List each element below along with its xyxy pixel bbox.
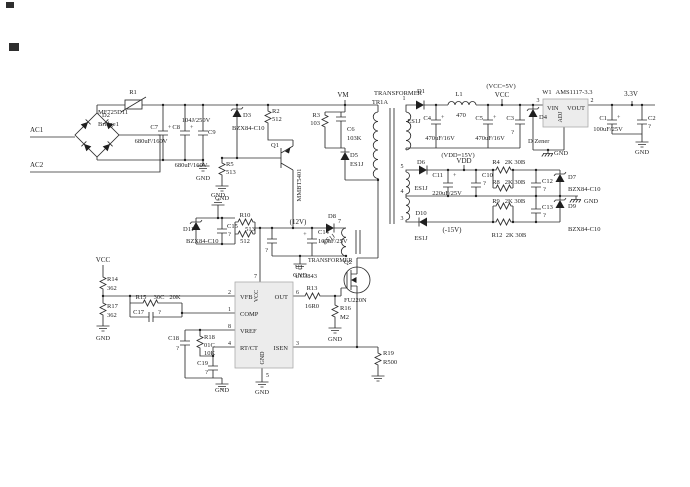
r5-ref: R5 [226,161,234,168]
r3-resistor [322,112,328,130]
ground-icon [216,182,229,191]
c14-polarity: + [303,232,307,238]
net-label-vcc: VCC [495,91,510,99]
d9-zener [554,196,566,212]
r5-value: 513 [226,169,236,176]
c17-capacitor [144,312,158,322]
ic-pin5-num: 5 [266,373,269,379]
c19-ref: C19 [197,360,208,367]
ams-pin-adj: ADJ [558,111,564,123]
ic-pin8-num: 8 [228,324,231,330]
c4-capacitor [431,115,441,129]
d7-ref: D7 [568,174,577,181]
c7-value: 680uF/160V [135,138,168,145]
c11-value: 220uF/25V [432,190,462,197]
c5-polarity: + [493,115,497,121]
ic-pin1-num: 1 [228,307,231,313]
r16-resistor [332,302,338,320]
r4-ref: R4 [492,159,500,166]
c13-capacitor [531,204,541,218]
c17-ref: C17 [133,309,145,316]
tr1a-secondary-winding-3 [406,198,410,220]
d3-zener [231,105,243,121]
r3-ref: R3 [312,112,320,119]
ground-icon [329,324,342,333]
c18-ref: C18 [168,335,179,342]
r8-ref: R8 [492,179,500,186]
c9-value: 104J/250V [182,117,211,124]
net-label-vm: VM [337,91,349,99]
schematic-page: AC1 AC2 R1 MF725D11 D2 Bridge1 C7 + 680u… [0,0,690,487]
ic-pin-out: OUT [275,294,288,301]
net-label-vdd: VDD [456,157,471,165]
tr1a-pin4: 4 [401,189,404,195]
c12-capacitor [531,178,541,192]
tr1a-secondary-winding-2 [406,172,410,194]
net-label-ac2: AC2 [30,161,44,169]
tr1a-pin3: 3 [401,216,404,222]
q2-ref: Q2 [344,259,352,266]
q2-mosfet [344,267,370,293]
d3-ref: D3 [243,112,251,119]
r19-value: R500 [383,359,397,366]
c17-value: ? [158,309,161,316]
gnd-label: GND [196,175,210,182]
c7-polarity: + [168,125,172,131]
d6-value: ES1J [414,185,428,192]
c15-ref: C15 [227,223,238,230]
r18-ref: R18 [204,334,215,341]
c2-capacitor [637,115,647,129]
c3-value: ? [511,129,514,136]
c5-capacitor [483,115,493,129]
net-label-3v3: 3.3V [624,90,638,98]
c13-value: ? [543,212,546,219]
tr1a-pin1: 1 [403,96,406,102]
l1-ref: L1 [455,91,462,98]
c1-value: 100uF/25V [593,126,623,133]
r14-ref: R14 [107,276,119,283]
ic-pin-rtct: RT/CT [240,345,258,352]
r19-resistor [375,350,381,368]
d1-diode [412,101,428,110]
c4-polarity: + [441,115,445,121]
r4-value: 2K 30B [505,159,526,166]
ams-pin-vin: VIN [547,105,559,112]
earth-ground-icon [570,196,581,203]
ams-pin2: 2 [591,98,594,104]
r17-ref: R17 [107,303,119,310]
r14-value: 362 [107,285,117,292]
r15-code: 30C [154,294,165,301]
c8-value: 680uF/160V [175,162,208,169]
net-label-vcc-eq: (VCC=5V) [486,83,515,90]
ic-pin-comp: COMP [240,311,259,318]
r2-ref: R2 [272,108,280,115]
r19-ref: R19 [383,350,394,357]
tr1a-pin5: 5 [401,164,404,170]
d4-zener [527,105,539,121]
gnd-label: GND [554,150,568,157]
d9-value: BZX84-C10 [568,226,601,233]
ic-pin-vref: VREF [240,328,257,335]
c7-ref: C7 [150,124,158,131]
c4-ref: C4 [423,115,431,122]
ams-pin-vout: VOUT [567,105,585,112]
r2-value: 512 [272,116,282,123]
gnd-label: GND [635,149,649,156]
r5-resistor [219,160,225,178]
ic-pin-vcc: VCC [254,290,260,302]
d10-value: ES1J [414,235,428,242]
d9-ref: D9 [568,203,576,210]
c5-ref: C5 [475,115,483,122]
c19-capacitor [208,361,218,375]
c1-ref: C1 [599,115,607,122]
c8-ref: C8 [172,124,180,131]
d2-value: Bridge1 [98,121,119,128]
d6-diode [415,166,431,175]
q1-transistor [281,146,293,170]
q2-value: FU220N [344,297,367,304]
c6-capacitor [336,112,346,126]
d5-ref: D5 [350,152,358,159]
net-label-12v: (12V) [290,218,307,226]
d10-ref: D10 [415,210,426,217]
q1-value: MMBT5401 [296,169,303,202]
w1-value: AMS1117-3.3 [556,89,593,96]
c12-ref: C12 [542,178,553,185]
d5-value: ES1J [350,161,364,168]
u1-value: UC3843 [295,273,317,280]
gnd-label: GND [255,389,269,396]
transformer-label: TRANSFORMER [374,90,423,97]
ic-pin-vfb: VFB [240,294,253,301]
r12-ref: R12 [492,232,503,239]
r17-value: 362 [107,312,117,319]
d7-zener [554,170,566,186]
tr1a-ref: TR1A [372,99,389,106]
tr1a-pin7: 7 [338,219,341,225]
d1-ref: D1 [417,88,425,95]
bridge-rectifier-outline [75,113,119,157]
d4-value: D Zener [528,138,550,145]
ic-pin7-num: 7 [254,274,257,280]
c14-ref: C14 [318,229,330,236]
r10-value-a: 513 [245,226,255,233]
d3-value: BZX84-C10 [232,125,265,132]
ic-pin6-num: 6 [296,290,299,296]
w1-ref: W1 [542,89,551,96]
l1-value: 470 [456,112,466,119]
r8-value: 2K 30B [505,179,526,186]
r12-value: 2K 30B [506,232,527,239]
r9-value: 2K 30B [505,198,526,205]
c3-capacitor [515,115,525,129]
gnd-label: GND [328,336,342,343]
c5-value: 470uF/16V [475,135,505,142]
c2-ref: C2 [648,115,656,122]
r13-ref: R13 [307,285,318,292]
ground-icon [256,378,269,387]
c10-ref: C10 [482,172,493,179]
ams1117-regulator-body [543,99,588,127]
net-label-vcc2: VCC [96,256,111,264]
r18-resistor [197,333,203,351]
r16-value: M2 [340,314,349,321]
c8-polarity: + [190,125,194,131]
gnd-label: GND [96,335,110,342]
ground-icon [372,372,385,381]
net-label-neg15: (-15V) [442,226,462,234]
r2-resistor [265,108,271,126]
gnd-label: GND [584,198,598,205]
d1-value: ES1J [407,118,421,125]
c9-ref: C9 [208,129,216,136]
unnamed-cap-value: ? [265,247,268,254]
r13-value: 16R0 [305,303,319,310]
d6-ref: D6 [417,159,426,166]
c9-capacitor [198,126,208,140]
c4-value: 470uF/16V [425,135,455,142]
r18-code: 01C [204,342,215,349]
c1-polarity: + [617,115,621,121]
r10-resistor [235,219,255,225]
schematic-canvas: AC1 AC2 R1 MF725D11 D2 Bridge1 C7 + 680u… [0,0,690,487]
r10-value-b: 512 [240,238,250,245]
c6-value: 103K [347,135,362,142]
tr1a-primary-winding [373,112,378,179]
ic-pin3-num: 3 [296,341,299,347]
c6-ref: C6 [347,126,355,133]
ams-pin3: 3 [537,98,540,104]
r12-resistor [493,219,513,225]
ic-pin-gnd: GND [260,351,266,365]
r9-ref: R9 [492,198,500,205]
d10-diode [415,218,431,227]
r13-resistor [302,293,322,299]
ic-pin4-num: 4 [228,341,231,347]
c10-capacitor [471,178,481,192]
d2-ref: D2 [102,112,110,119]
c19-value: ? [205,369,208,376]
gnd-label: GND [215,387,229,394]
r3-value: 103 [310,120,320,127]
l1-inductor [448,102,476,105]
u1-ref: U1 [295,264,303,271]
ground-icon [636,138,649,147]
c3-ref: C3 [506,115,514,122]
gnd-label: GND [211,192,225,199]
d8-ref: D8 [328,213,336,220]
q1-ref: Q1 [271,142,279,149]
r16-ref: R16 [340,305,352,312]
c15-capacitor [217,224,227,238]
c8-capacitor [180,126,190,140]
c14-capacitor [307,234,317,248]
unnamed-capacitor [267,234,277,248]
c13-ref: C13 [542,204,553,211]
c12-value: ? [543,186,546,193]
c18-capacitor [180,336,190,350]
d7-value: BZX84-C10 [568,186,601,193]
c2-value: ? [648,123,651,130]
net-label-ac1: AC1 [30,126,44,134]
c11-ref: C11 [432,172,443,179]
c15-value: ? [228,231,231,238]
r4-resistor [493,167,513,173]
r15-value: 20K [169,294,181,301]
r1-ref: R1 [129,89,137,96]
c18-value: ? [176,345,179,352]
d11-value: BZX84-C10 [186,238,219,245]
c10-value: ? [483,180,486,187]
r14-resistor [100,274,106,292]
ic-pin-isen: ISEN [274,345,289,352]
d5-diode [341,148,350,164]
r10-ref: R10 [240,212,251,219]
r18-value: 10K [204,350,216,357]
c11-polarity: + [453,173,457,179]
ground-icon [97,322,110,331]
r15-ref: R15 [136,294,147,301]
ic-pin2-num: 2 [228,290,231,296]
d11-ref: D11 [183,226,194,233]
d4-ref: D4 [539,114,548,121]
r17-resistor [100,300,106,318]
